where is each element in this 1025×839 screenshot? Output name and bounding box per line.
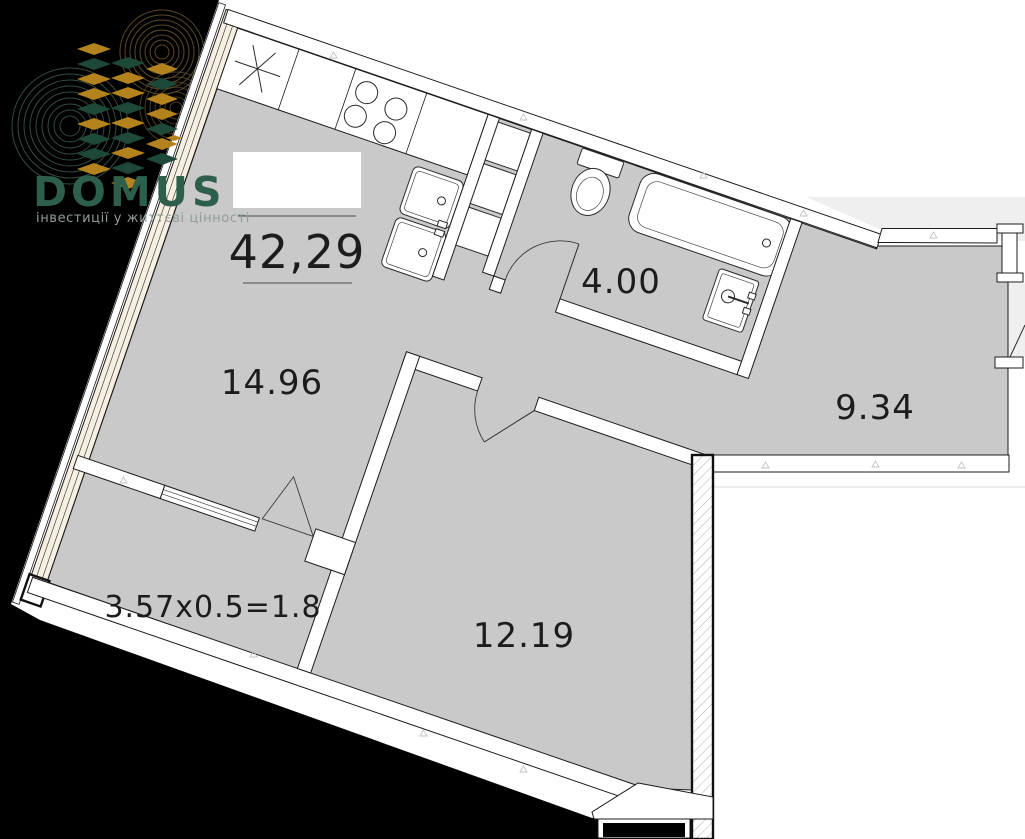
total-area-label: 42,29: [229, 225, 366, 279]
logo-tagline: інвестиції у життєві цінності: [36, 211, 250, 226]
adjacent-area-right: [1008, 283, 1025, 357]
apartment-label-box: [233, 152, 361, 208]
floor-plan-page: 42,29 14.96 4.00 9.34 12.19 3.57x0.5=1.8: [0, 0, 1025, 839]
entry-jamb-bottom: [995, 357, 1023, 368]
room-hallway-area: 9.34: [835, 388, 915, 428]
bottom-window-opening: [603, 823, 685, 837]
room-bedroom-area: 12.19: [473, 616, 575, 656]
room-balcony-area: 3.57x0.5=1.8: [104, 590, 321, 625]
logo-wordmark: DOMUS: [33, 168, 226, 216]
corridor-bottom-wall: [713, 455, 1009, 472]
room-living-kitchen-area: 14.96: [221, 363, 323, 403]
structural-pier: [692, 455, 713, 839]
room-bathroom-area: 4.00: [581, 262, 661, 302]
corridor-top-wall: [878, 229, 997, 244]
floor-plan-canvas: 42,29 14.96 4.00 9.34 12.19 3.57x0.5=1.8: [0, 0, 1025, 839]
